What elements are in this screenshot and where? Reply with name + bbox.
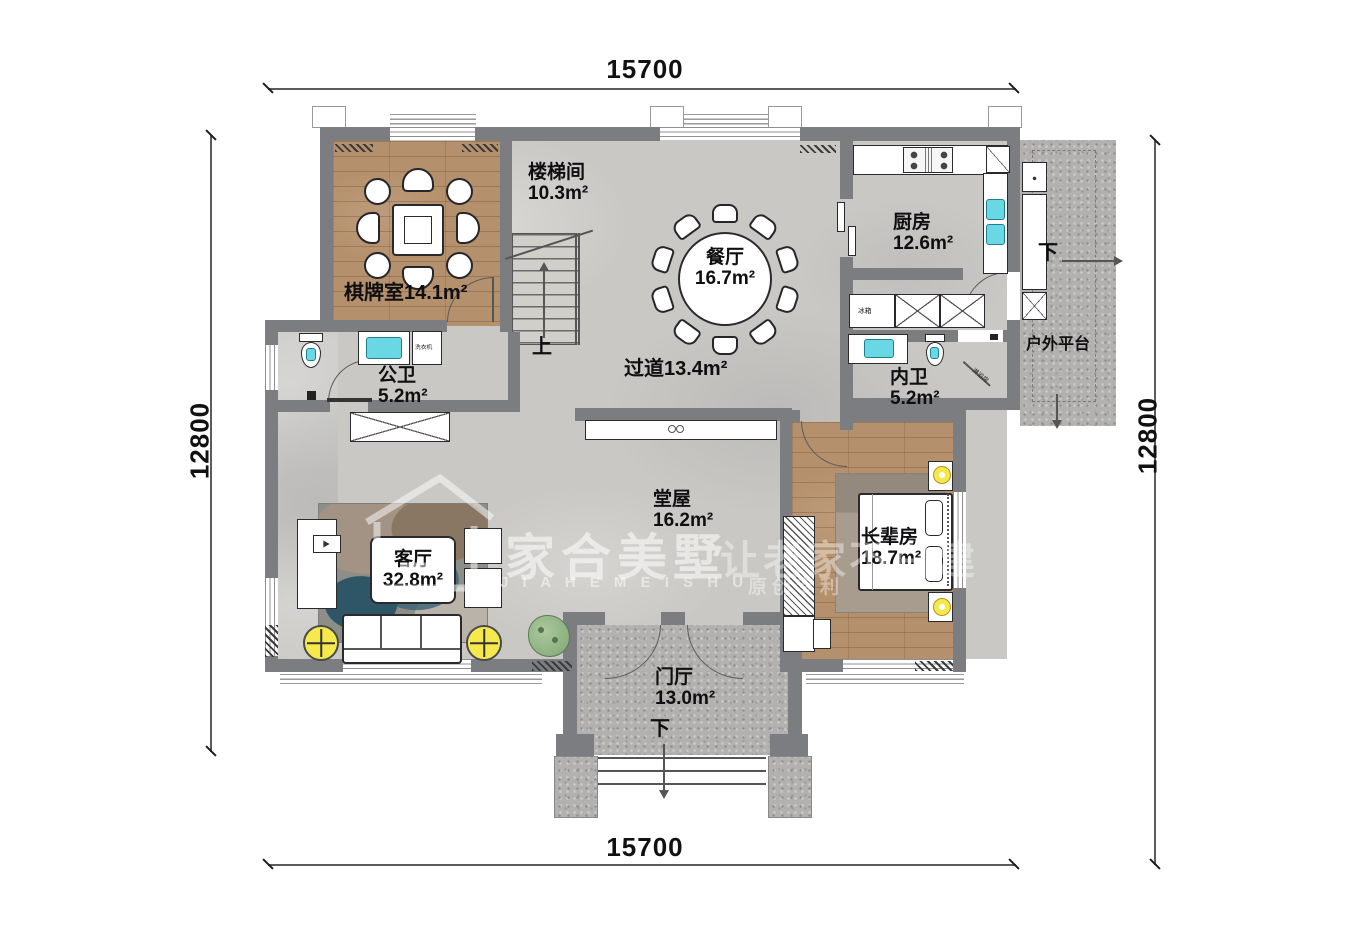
water-heater: [1022, 162, 1047, 192]
kitchen-sink: [986, 224, 1005, 245]
window-top-chess: [390, 127, 475, 141]
platform-arrow-down-line: [1056, 394, 1058, 422]
cabinet: [895, 294, 940, 328]
sliding-door-kitchen: [848, 226, 856, 256]
wardrobe: [783, 516, 815, 616]
sideboard-decor-icon: [668, 425, 685, 433]
tv-console: [297, 519, 337, 609]
pillow: [925, 546, 943, 582]
washing-machine-label: 洗衣机: [415, 343, 432, 351]
wall-hall-south-2: [661, 612, 685, 625]
sofa: [342, 614, 462, 664]
room-name: 户外平台: [1026, 336, 1090, 353]
room-name: 门厅: [655, 668, 715, 689]
door-leaf-chess: [492, 277, 494, 322]
platform-arrow-down-icon: [1052, 420, 1062, 429]
fridge: [849, 294, 895, 328]
foyer-arrow-head-icon: [659, 790, 669, 799]
stool: [364, 178, 391, 205]
room-name: 公卫: [378, 366, 428, 387]
wall-shelf: [327, 398, 372, 402]
kitchen-sink: [986, 199, 1005, 220]
exterior-pilaster: [988, 106, 1022, 128]
room-label-foyer: 门厅13.0m²: [655, 668, 715, 710]
entry-console-cabinet: [350, 412, 450, 442]
shower-head-icon: [990, 334, 998, 340]
room-name: 餐厅: [678, 248, 772, 269]
room-area: 13.4m²: [664, 358, 727, 380]
side-table: [464, 568, 502, 608]
stair-arrow-line: [543, 270, 545, 338]
room-label-kitchen: 厨房12.6m²: [893, 213, 953, 255]
sofa-back-line: [344, 648, 460, 650]
round-side-table: [303, 625, 339, 661]
wall-hatch-mark: [462, 144, 498, 152]
wall-public-bath-right: [508, 332, 520, 412]
wall-hatch-mark: [532, 661, 572, 671]
wall-hall-south-1: [575, 612, 605, 625]
stair-arrow-head-icon: [539, 262, 549, 271]
room-name: 客厅: [370, 550, 456, 571]
window-left-bath: [265, 345, 278, 390]
chair: [402, 168, 434, 192]
room-label-outdoor-platform: 户外平台: [1026, 336, 1090, 354]
platform-down-label: 下: [1038, 242, 1058, 264]
platform-arrow-line: [1062, 260, 1116, 262]
curtain-line: [947, 494, 949, 586]
stool: [446, 178, 473, 205]
porch-column-right: [768, 756, 812, 818]
lamp-icon: [933, 598, 951, 616]
dimension-label-right: 12800: [1133, 376, 1164, 496]
wall-dining-kitchen-top: [840, 141, 853, 199]
room-name: 棋牌室: [344, 282, 404, 304]
tv-icon: [323, 541, 329, 548]
round-side-table: [466, 625, 502, 661]
dimension-line-right: [1154, 140, 1156, 865]
room-label-public-bath: 公卫5.2m²: [378, 366, 428, 408]
sofa-seat-divider: [380, 616, 382, 648]
room-name: 过道: [624, 358, 664, 380]
toilet-tank: [299, 333, 323, 342]
stool: [364, 252, 391, 279]
wall-hatch-mark: [915, 661, 953, 671]
plant: [528, 615, 570, 657]
dimension-label-bottom: 15700: [585, 832, 705, 863]
wall-public-bath-bottom: [265, 400, 330, 412]
platform-arrow-head-icon: [1114, 256, 1123, 266]
room-area: 5.2m²: [890, 389, 940, 410]
foyer-down-label: 下: [650, 718, 670, 740]
chair: [356, 212, 380, 244]
floor-plan-page: 15700 15700 12800 12800: [0, 0, 1360, 937]
toilet-tank: [925, 334, 945, 342]
room-area: 16.7m²: [678, 269, 772, 290]
toilet-water: [306, 348, 316, 361]
window-sill: [806, 674, 964, 684]
window-sill: [280, 674, 542, 684]
wall-chess-stair: [500, 141, 512, 332]
room-name: 内卫: [890, 368, 940, 389]
porch-pillar-left: [556, 734, 594, 756]
room-label-stairwell: 楼梯间10.3m²: [528, 163, 588, 205]
room-area: 18.7m²: [861, 549, 921, 570]
room-label-dining: 餐厅16.7m²: [678, 248, 772, 290]
sliding-door-kitchen: [837, 202, 845, 232]
door-gap-platform: [1007, 272, 1020, 320]
window-elder-east: [953, 492, 966, 588]
mahjong-table-inner: [404, 216, 432, 244]
stove: [903, 147, 953, 173]
dimension-label-left: 12800: [185, 381, 216, 501]
wall-elder-top: [792, 410, 800, 422]
porch-pillar-right: [770, 734, 808, 756]
room-area: 13.0m²: [655, 689, 715, 710]
stool: [446, 252, 473, 279]
foyer-arrow-line: [663, 744, 665, 792]
stair-up-label: 上: [532, 336, 552, 358]
room-name: 长辈房: [861, 528, 921, 549]
wall-hatch-mark: [800, 145, 836, 153]
exterior-pilaster: [650, 106, 684, 128]
side-table: [464, 528, 502, 564]
room-area: 14.1m²: [404, 282, 467, 304]
room-area: 16.2m²: [653, 511, 713, 532]
room-label-living: 客厅32.8m²: [370, 550, 456, 592]
pillow: [925, 500, 943, 536]
dimension-line-bottom: [268, 864, 1016, 866]
dresser: [783, 616, 815, 652]
room-name: 厨房: [893, 213, 953, 234]
room-area: 5.2m²: [378, 387, 428, 408]
staircase: [512, 233, 580, 345]
room-area: 10.3m²: [528, 184, 588, 205]
window-top-dining: [660, 127, 800, 141]
room-name: 楼梯间: [528, 163, 588, 184]
porch-step-line: [598, 770, 766, 772]
window-sill: [390, 114, 476, 125]
wall-switch: [307, 391, 316, 400]
kitchen-corner-cabinet: [986, 146, 1010, 173]
fridge-label: 冰箱: [858, 306, 872, 315]
room-area: 32.8m²: [370, 571, 456, 592]
room-label-chess: 棋牌室14.1m²: [344, 282, 467, 304]
bath-sink: [864, 339, 894, 358]
exterior-pilaster: [768, 106, 802, 128]
porch-step-line: [598, 783, 766, 785]
dimension-label-top: 15700: [585, 54, 705, 85]
wall-kitchen-bottom: [852, 268, 963, 280]
exterior-pilaster: [312, 106, 346, 128]
sofa-seat-divider: [420, 616, 422, 648]
outdoor-basin: [1022, 292, 1047, 320]
wall-exterior-left-upper: [320, 127, 333, 332]
porch-step-line: [598, 757, 766, 759]
wall-elder-top2: [848, 410, 953, 422]
room-name: 堂屋: [653, 490, 713, 511]
porch-column-left: [554, 756, 598, 818]
cabinet: [940, 294, 985, 328]
room-label-hall: 堂屋16.2m²: [653, 490, 713, 532]
bath-sink: [366, 337, 402, 359]
room-label-corridor: 过道13.4m²: [624, 358, 727, 380]
dining-chair: [712, 336, 738, 355]
tv: [813, 619, 831, 649]
room-area: 12.6m²: [893, 234, 953, 255]
room-label-inner-bath: 内卫5.2m²: [890, 368, 940, 410]
dining-chair: [712, 204, 738, 223]
wall-hatch-mark: [265, 625, 278, 657]
lamp-icon: [933, 466, 951, 484]
dimension-line-top: [268, 88, 1016, 90]
room-label-elder: 长辈房18.7m²: [861, 528, 921, 570]
toilet-water: [930, 347, 939, 359]
wall-hatch-mark: [335, 144, 373, 152]
